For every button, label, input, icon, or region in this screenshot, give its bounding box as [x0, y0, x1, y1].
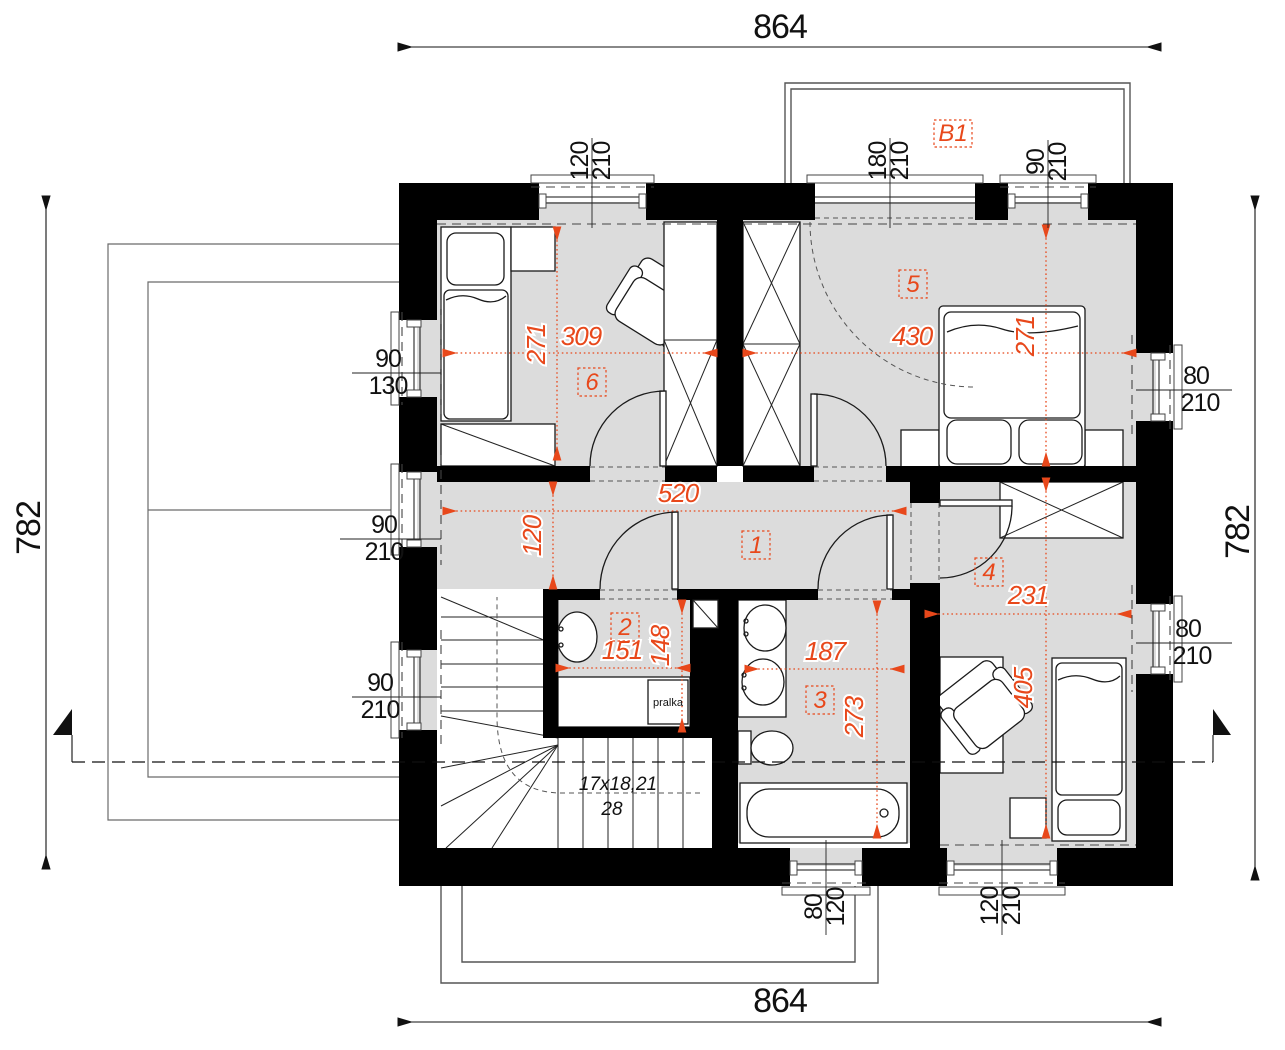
garage-roof-outline: [108, 244, 399, 820]
floor-plan-drawing: 271 309 430 271 520 120 151 148 187 273 …: [0, 0, 1285, 1050]
win-right2-height: 210: [1173, 642, 1212, 670]
dim-room6-depth: 271: [521, 324, 551, 365]
win-left2-height: 210: [365, 538, 404, 566]
dim-room5-depth: 271: [1010, 316, 1040, 357]
win-right1-height: 210: [1181, 389, 1220, 417]
win-bottom2-height: 210: [998, 887, 1026, 926]
dim-hall-length: 520: [658, 478, 700, 508]
room-4-number: 4: [982, 559, 995, 586]
room-5-number: 5: [906, 271, 920, 298]
win-top1-height: 210: [588, 142, 616, 181]
floor-plan-canvas: 271 309 430 271 520 120 151 148 187 273 …: [0, 0, 1285, 1050]
dim-hall-width: 120: [517, 514, 547, 556]
overall-dim-top: 864: [753, 8, 807, 46]
dim-bath-width: 187: [805, 636, 848, 666]
win-top3-height: 210: [1044, 143, 1072, 182]
dim-room4-depth: 405: [1008, 666, 1038, 708]
stairs-run-label: 17x18,21: [579, 774, 657, 795]
dim-bath-depth: 273: [839, 695, 869, 738]
room-6-number: 6: [585, 369, 599, 396]
window-80x210-right-up: [1136, 345, 1182, 429]
overall-dim-right: 782: [1219, 505, 1257, 559]
balcony-tag: B1: [938, 120, 967, 147]
win-left1-width: 90: [375, 345, 401, 373]
dim-room6-width: 309: [561, 321, 602, 351]
washer-label: pralka: [653, 697, 684, 709]
win-left1-height: 130: [369, 372, 408, 400]
win-top2-height: 210: [886, 142, 914, 181]
win-bottom1-height: 120: [822, 888, 850, 927]
room-2-number: 2: [617, 614, 631, 641]
stairs-count-label: 28: [600, 799, 623, 820]
win-right1-width: 80: [1183, 362, 1209, 390]
win-right2-width: 80: [1175, 615, 1201, 643]
window-120x210-top: [531, 175, 654, 220]
overall-dim-bottom: 864: [753, 982, 807, 1020]
overall-dim-left: 782: [10, 501, 48, 555]
win-left3-height: 210: [361, 696, 400, 724]
duct-shaft: [693, 600, 718, 628]
room-3-number: 3: [813, 687, 827, 714]
dim-room4-width: 231: [1007, 580, 1048, 610]
win-left2-width: 90: [371, 511, 397, 539]
win-left3-width: 90: [367, 669, 393, 697]
dim-room5-width: 430: [892, 321, 934, 351]
dim-wc-depth: 148: [645, 624, 675, 666]
room-1-number: 1: [749, 532, 762, 559]
